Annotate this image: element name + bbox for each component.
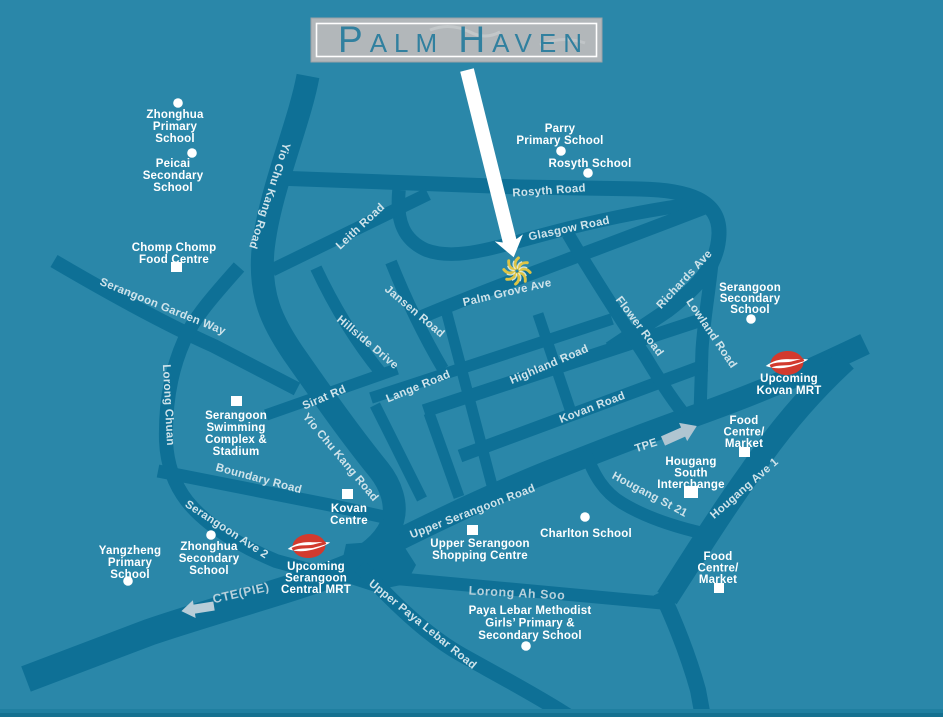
svg-text:UpcomingSerangoonCentral MRT: UpcomingSerangoonCentral MRT [281,561,351,596]
svg-text:SerangoonSwimmingComplex &Stad: SerangoonSwimmingComplex &Stadium [205,410,267,458]
svg-text:Charlton School: Charlton School [540,528,632,540]
svg-text:Paya Lebar MethodistGirls’ Pri: Paya Lebar MethodistGirls’ Primary &Seco… [469,605,592,642]
svg-text:UpcomingKovan MRT: UpcomingKovan MRT [756,373,821,397]
svg-text:Rosyth School: Rosyth School [548,158,631,170]
svg-text:Chomp ChompFood Centre: Chomp ChompFood Centre [132,242,217,266]
svg-text:Upper SerangoonShopping Centre: Upper SerangoonShopping Centre [430,538,529,562]
svg-text:KovanCentre: KovanCentre [330,503,368,527]
